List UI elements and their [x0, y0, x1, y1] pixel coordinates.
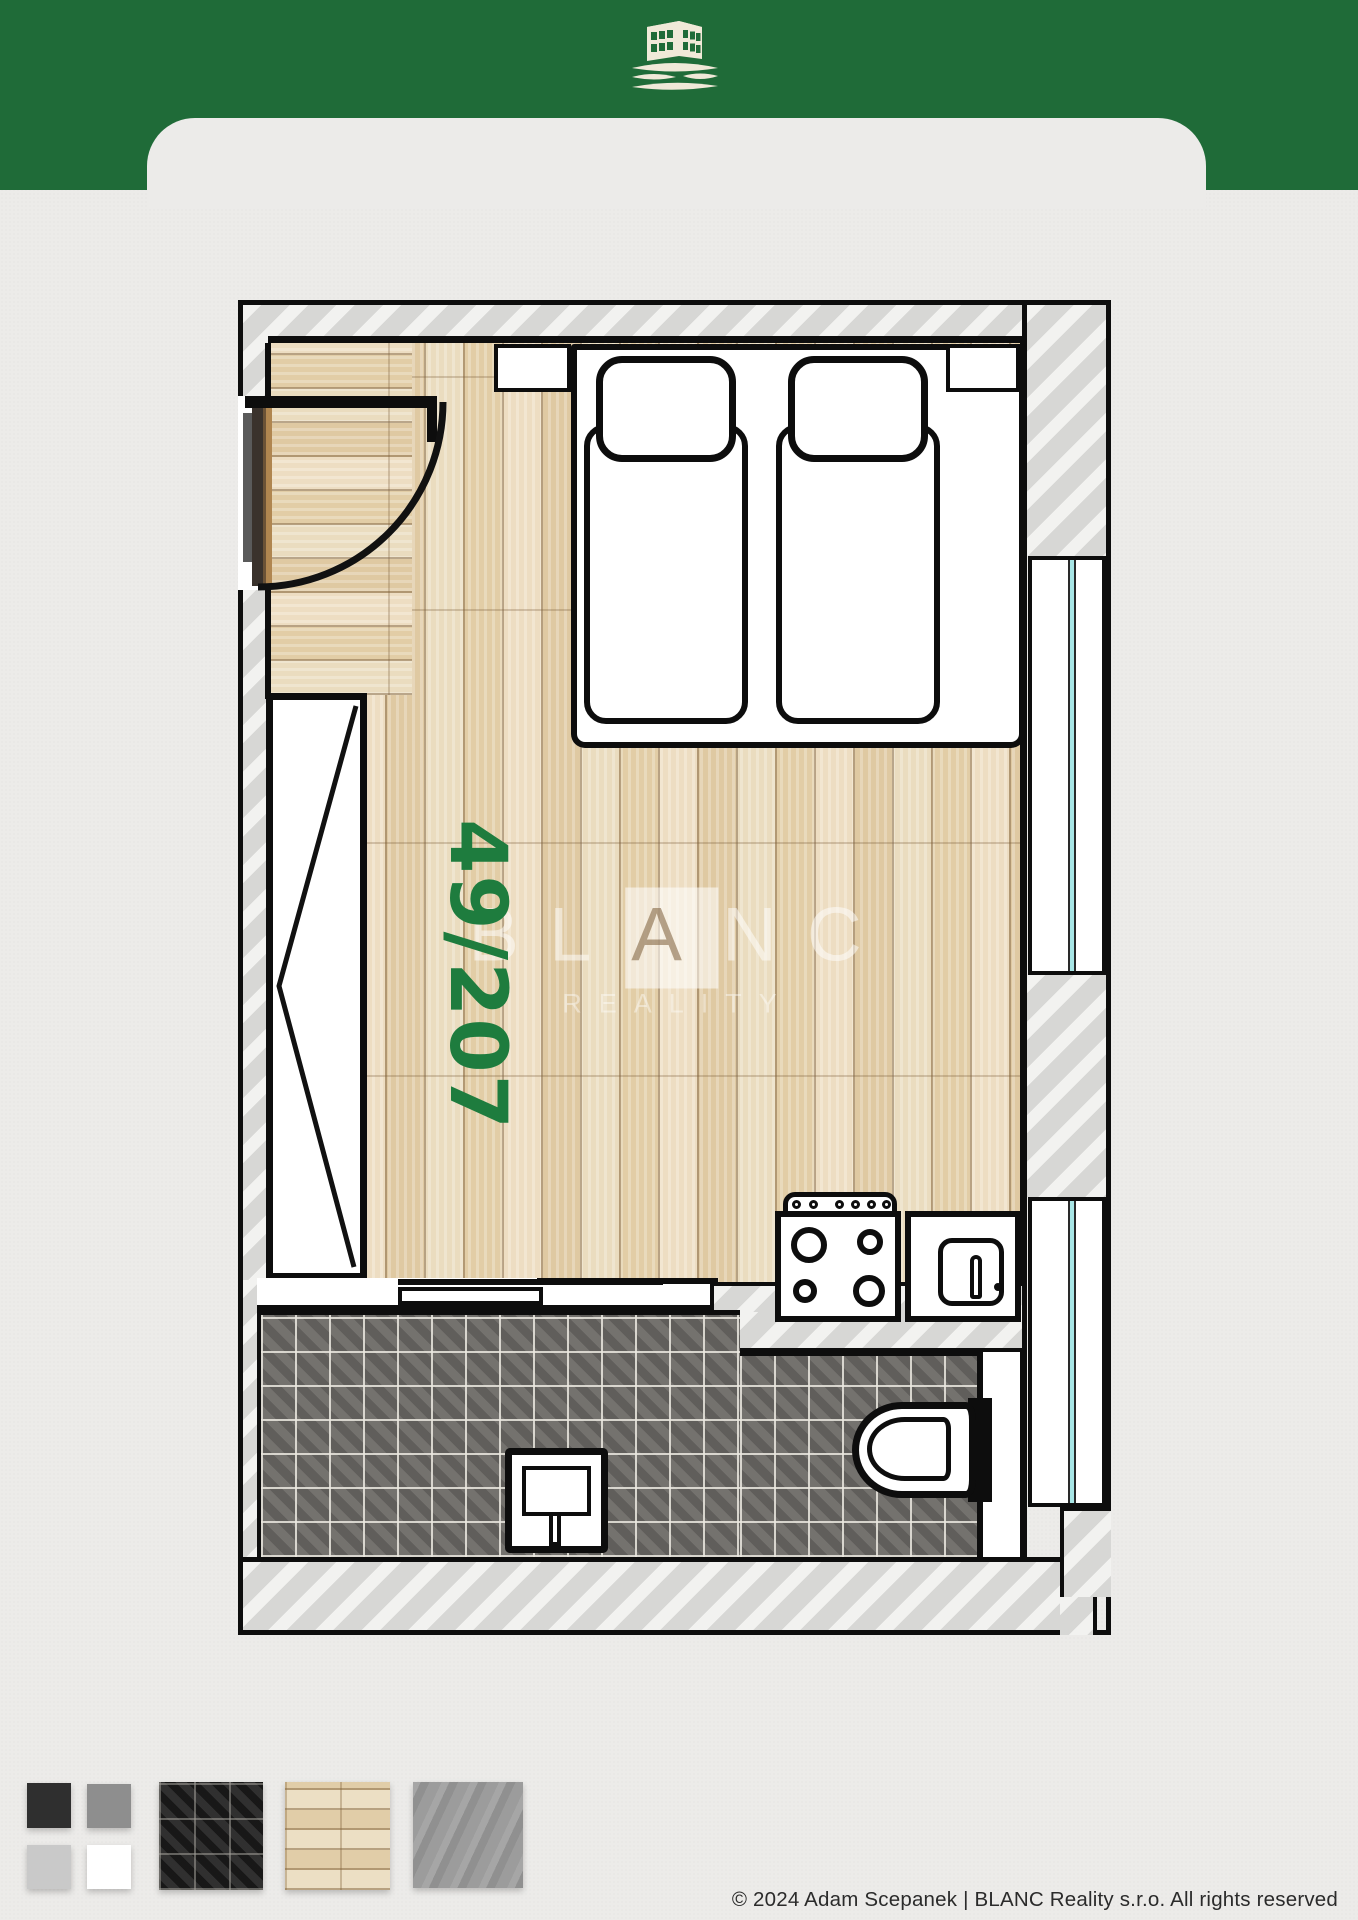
stove-burner-1: [791, 1227, 827, 1263]
stove-burner-2: [857, 1229, 883, 1255]
entry-door-sill: [243, 413, 252, 562]
wardrobe: [266, 693, 367, 1280]
washbasin-bowl: [522, 1466, 591, 1516]
bathroom-floor-left: [257, 1310, 740, 1557]
swatch-concrete: [413, 1782, 523, 1888]
kitchen-sink-unit: [905, 1211, 1021, 1322]
wall-block-mid-right: [1022, 975, 1106, 1197]
wall-inner-line-top: [268, 336, 1022, 343]
swatch-dark-tile: [159, 1782, 263, 1890]
stove-burner-4: [853, 1275, 885, 1307]
toilet-bowl: [867, 1417, 951, 1481]
window-lower-glass: [1068, 1201, 1076, 1503]
bathroom-sliding-door-leaf: [398, 1287, 543, 1305]
wall-corner-bottom-right-a: [1060, 1507, 1111, 1597]
swatch-paint-white: [87, 1845, 131, 1889]
watermark-brand: BLANC: [468, 888, 891, 989]
building-logo-icon: [627, 14, 723, 98]
wall-bottom: [243, 1557, 1097, 1630]
washbasin: [505, 1448, 608, 1553]
stove-knob: [867, 1200, 876, 1209]
stove-knob: [835, 1200, 844, 1209]
watermark-subtitle: REALITY: [562, 989, 794, 1020]
pillow-1: [596, 356, 736, 462]
header-notch: [147, 118, 1206, 208]
stove-burner-3: [793, 1279, 817, 1303]
washbasin-tap: [549, 1516, 561, 1546]
unit-number-label: 49/207: [432, 819, 522, 1131]
swatch-paint-dark-gray: [27, 1783, 71, 1828]
wall-inner-line-left-a: [265, 343, 271, 400]
window-upper-glass: [1068, 560, 1076, 971]
bedside-niche-left: [494, 344, 571, 392]
mattress-2: [776, 424, 940, 724]
wall-corner-bottom-right-b: [1060, 1597, 1097, 1635]
sink-faucet: [970, 1255, 982, 1299]
swatch-paint-medium-gray: [87, 1784, 131, 1828]
watermark-part3: NC: [722, 893, 892, 978]
watermark-boxed-letter: A: [625, 888, 718, 989]
page: BLANC REALITY 49/207 © 2024 Adam Scepane…: [0, 0, 1358, 1920]
swatch-paint-light-gray: [27, 1845, 71, 1889]
stove-knob: [882, 1200, 891, 1209]
sink-drain: [994, 1283, 1002, 1291]
mattress-1: [584, 424, 748, 724]
wall-corner-top-right: [1022, 305, 1106, 556]
stove-knob: [792, 1200, 801, 1209]
pillow-2: [788, 356, 928, 462]
sliding-door-rail: [398, 1279, 663, 1285]
wall-inner-line-left-b: [265, 583, 271, 699]
window-upper: [1028, 556, 1106, 975]
stove-knob: [809, 1200, 818, 1209]
window-lower: [1028, 1197, 1106, 1507]
kitchen-stove: [775, 1211, 901, 1322]
copyright-text: © 2024 Adam Scepanek | BLANC Reality s.r…: [732, 1888, 1338, 1912]
swatch-wood-parquet: [285, 1782, 390, 1890]
bedside-niche-right: [946, 344, 1020, 392]
stove-knob: [851, 1200, 860, 1209]
entry-door-swing-arc: [258, 402, 448, 592]
toilet: [852, 1402, 976, 1498]
